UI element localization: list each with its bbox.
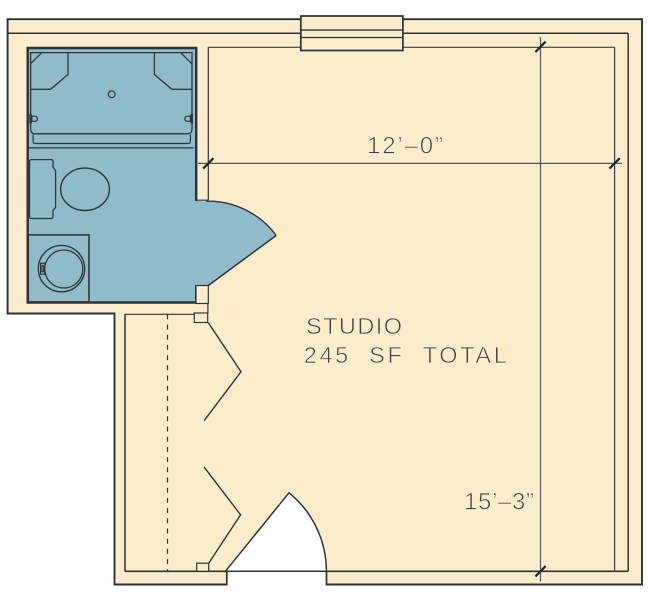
svg-text:STUDIO: STUDIO (306, 313, 402, 339)
svg-text:15’–3”: 15’–3” (464, 489, 534, 516)
svg-text:245 SF TOTAL: 245 SF TOTAL (304, 342, 507, 368)
svg-text:12’–0”: 12’–0” (367, 132, 443, 159)
